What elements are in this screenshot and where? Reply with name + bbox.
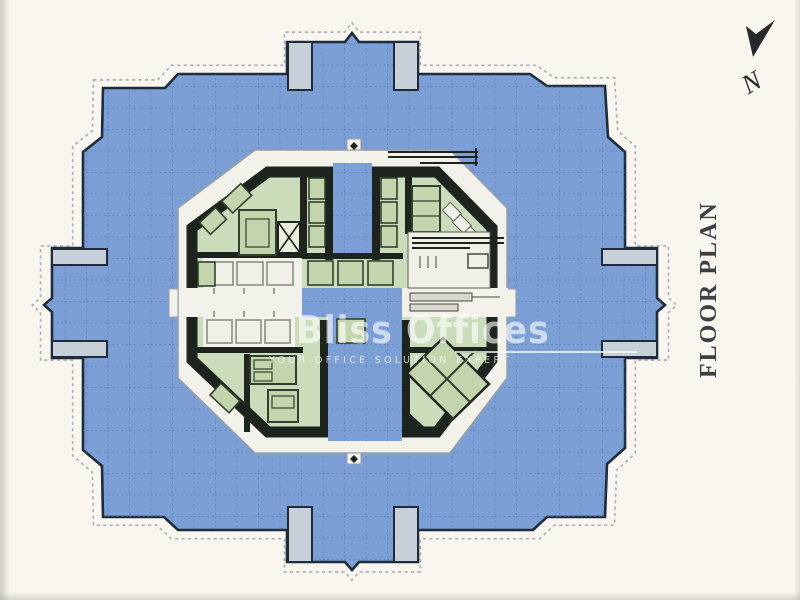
pier (602, 249, 657, 265)
pier (602, 341, 657, 357)
pier (288, 507, 312, 562)
page-title: FLOOR PLAN (696, 228, 723, 378)
pier (288, 42, 312, 90)
north-compass: N (735, 20, 775, 100)
elevator-bank-lower (203, 317, 365, 347)
central-core (169, 139, 516, 464)
floor-plan-drawing: N (0, 0, 800, 600)
pier (394, 507, 418, 562)
elevator-cell (308, 261, 333, 285)
core-tab-right (507, 289, 516, 317)
elevator-cell (207, 320, 232, 343)
pier (52, 341, 107, 357)
elevator-cell (368, 261, 393, 285)
elevator-cell (236, 320, 261, 343)
north-arrow-icon (746, 20, 775, 57)
mechanical-room (408, 232, 504, 288)
core-tab-left (169, 289, 178, 317)
pier (394, 42, 418, 90)
elevator-cell (237, 262, 263, 285)
north-label: N (735, 64, 768, 100)
stairwell-icon (278, 222, 300, 253)
elevator-cell (267, 262, 293, 285)
elevator-cell (265, 320, 290, 343)
elevator-cell (338, 261, 363, 285)
pier (52, 249, 107, 265)
floor-plan-page: N Bliss Offices YOUR OFFICE SOLUTION EXP… (0, 0, 800, 600)
